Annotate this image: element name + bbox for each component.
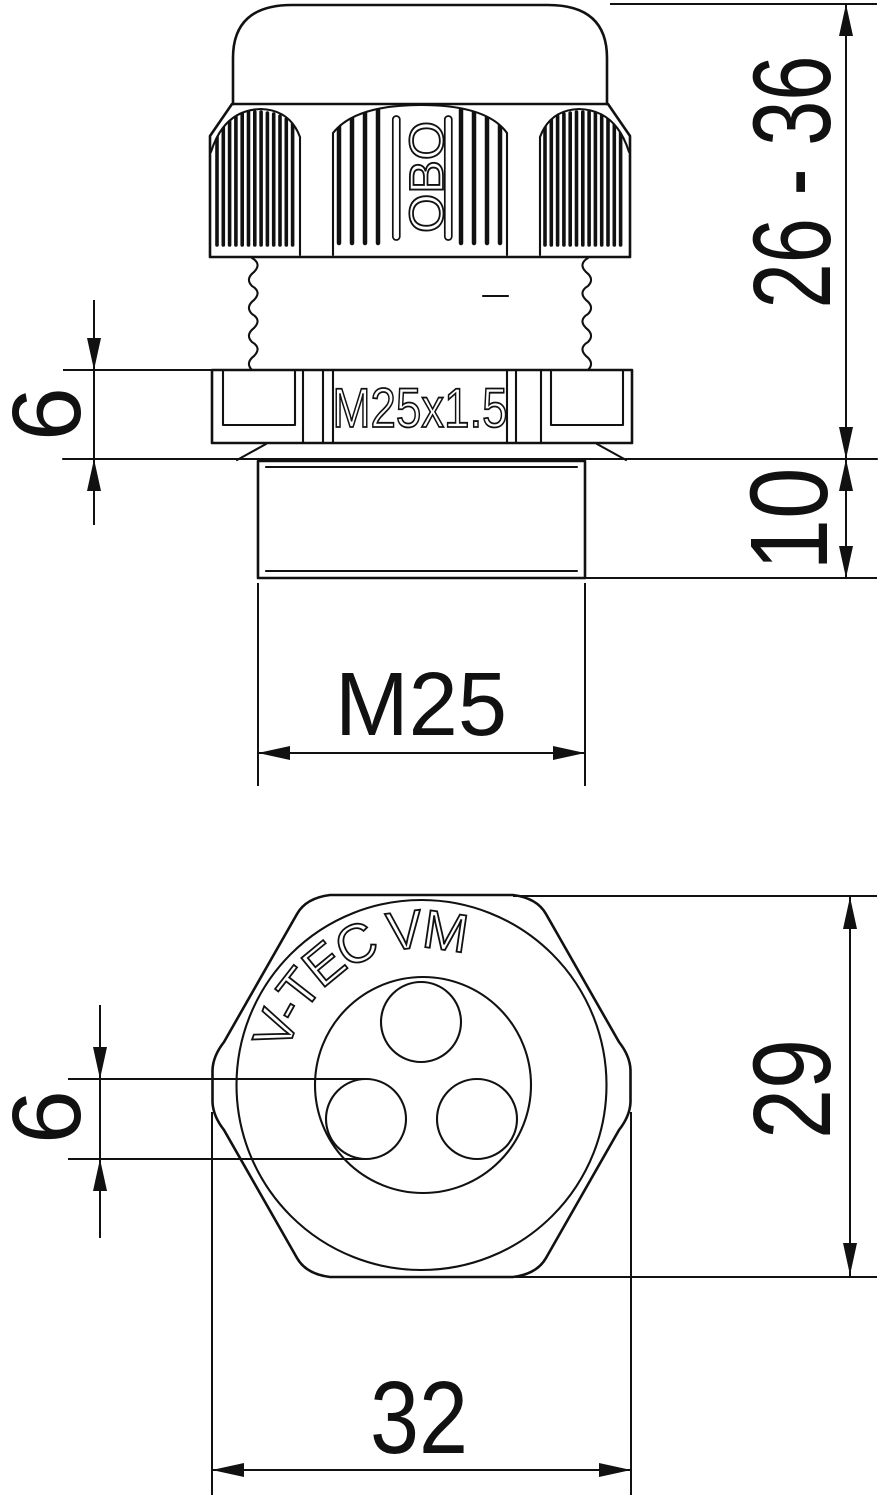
dim-label-clamping-range: 26 - 36 — [731, 56, 854, 309]
neck-outline — [258, 461, 585, 578]
arrow-up-icon — [87, 459, 101, 491]
dim-neck-length: 10 — [728, 459, 853, 578]
knurl-pad-right — [540, 109, 629, 255]
dim-hole-diameter: 6 — [0, 1005, 366, 1238]
thread-section — [249, 258, 591, 370]
hex-nut: M25x1.5 — [212, 370, 632, 460]
drawing-page: OBO M25x1.5 — [0, 0, 880, 1500]
dim-outer-diameter: 32 — [212, 1112, 631, 1495]
dim-label-hole-diameter: 6 — [0, 1090, 101, 1144]
arrow-down-icon — [843, 1243, 857, 1275]
arrow-right-icon — [599, 1463, 631, 1477]
arrow-down-icon — [93, 1047, 107, 1079]
nut-face-inset-left — [223, 370, 295, 425]
cable-hole-right — [437, 1079, 517, 1159]
dim-across-flats: 29 — [510, 896, 877, 1277]
dim-label-nut-height: 6 — [0, 387, 101, 441]
arrow-left-icon — [212, 1463, 244, 1477]
arrow-down-icon — [87, 338, 101, 370]
dim-nut-height: 6 — [0, 300, 213, 525]
knurl-ribs-right — [545, 112, 621, 245]
knurl-rib-wide — [393, 116, 400, 240]
arrow-right-icon — [553, 746, 585, 760]
thread-profile-left — [249, 258, 258, 370]
dim-label-neck-length: 10 — [728, 468, 851, 571]
dim-thread-size: M25 — [258, 583, 585, 786]
cable-hole-left — [326, 1079, 406, 1159]
thread-marking-text: M25x1.5 — [333, 376, 508, 439]
dim-label-thread-size: M25 — [335, 655, 507, 755]
technical-drawing-canvas: OBO M25x1.5 — [0, 0, 880, 1500]
thread-profile-right — [582, 258, 591, 370]
knurl-ribs-left — [217, 112, 293, 245]
cap-dome — [233, 5, 607, 104]
nut-face-inset-right — [551, 370, 623, 425]
nut-chamfer-lines — [237, 444, 626, 460]
bottom-view: V-TEC VM — [213, 895, 631, 1277]
dim-label-outer-diameter: 32 — [370, 1360, 468, 1475]
cable-hole-top — [381, 982, 461, 1062]
arrow-down-icon — [839, 427, 853, 459]
arrow-up-icon — [93, 1159, 107, 1191]
brand-logo-text: OBO — [401, 121, 454, 233]
arrow-up-icon — [839, 4, 853, 36]
neck-inset-lines — [266, 467, 577, 571]
knurl-pad-left — [211, 109, 300, 255]
arrow-left-icon — [258, 746, 290, 760]
arrow-up-icon — [843, 897, 857, 929]
knurl-pad-center: OBO — [333, 105, 507, 255]
dim-label-across-flats: 29 — [731, 1039, 854, 1139]
